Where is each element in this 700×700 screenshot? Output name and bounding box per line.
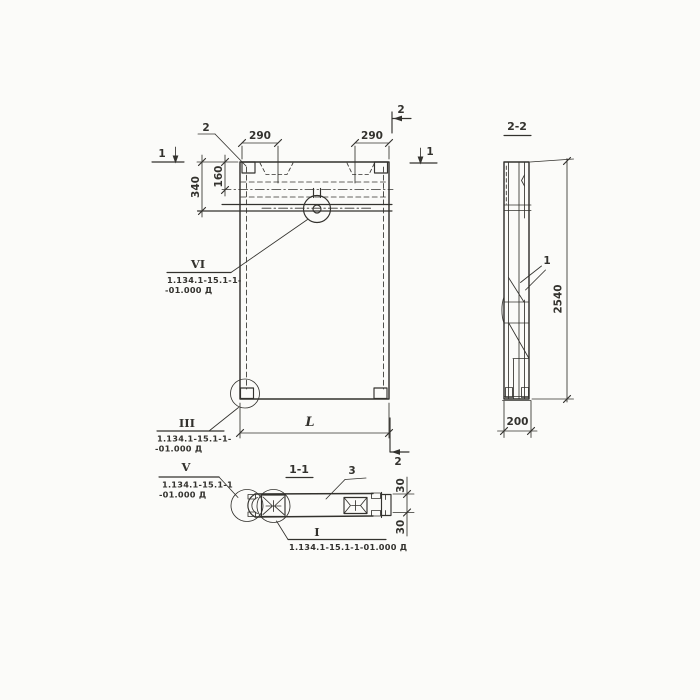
front-view-panel (198, 162, 394, 408)
foot-hatch-right (522, 388, 529, 398)
dim-160: 160 (213, 166, 225, 188)
dim-length-L: L (304, 415, 314, 430)
right-end-channel (372, 493, 392, 518)
middle-anchor-box (344, 498, 367, 514)
section-mark-1-left: 1 (152, 147, 184, 164)
section-2-2-title: 2-2 (507, 120, 527, 133)
section-mark-2-top-label: 2 (397, 104, 404, 116)
drawing-sheet: 290 290 340 160 L 1 1 (0, 0, 700, 700)
detail-i-label: I (314, 525, 319, 539)
bottom-right-hatch-pad (374, 388, 387, 399)
detail-vi-label: VI (190, 257, 205, 271)
lifting-loop-detail (304, 189, 331, 223)
technical-drawing: 290 290 340 160 L 1 1 (0, 0, 700, 700)
section-1-1-title: 1-1 (289, 463, 309, 476)
callout-1-label: 1 (543, 255, 550, 267)
detail-vi-doc-line1: 1.134.1-15.1-1- (167, 275, 242, 285)
detail-v-label: V (181, 460, 192, 474)
detail-v-doc-line1: 1.134.1-15.1-1 (162, 480, 233, 490)
callout-3-label: 3 (348, 465, 355, 477)
section-mark-2-bottom-label: 2 (394, 456, 401, 468)
detail-v-doc-line2: -01.000 Д (159, 490, 206, 500)
detail-circle-vi (304, 196, 331, 223)
dim-30-top: 30 (395, 478, 407, 493)
right-recess-hidden-outline (347, 163, 375, 175)
dim-340: 340 (190, 176, 202, 198)
section-mark-1-right: 1 (410, 146, 437, 165)
bottom-left-hatch-pad (241, 388, 254, 399)
section-mark-1-right-label: 1 (426, 146, 433, 158)
detail-callout-iii: III 1.134.1-15.1-1- -01.000 Д (155, 408, 239, 454)
detail-callout-vi: VI 1.134.1-15.1-1- -01.000 Д (165, 220, 308, 296)
detail-circle-iii (231, 379, 260, 408)
detail-iii-doc-line2: -01.000 Д (155, 444, 202, 454)
loop-ring (313, 205, 321, 213)
section-mark-2-top: 2 (392, 104, 411, 133)
left-recess-hidden-outline (260, 163, 293, 175)
top-right-hatch-pad (375, 162, 388, 173)
foot-hatch-left (506, 388, 513, 398)
detail-iii-doc-line1: 1.134.1-15.1-1- (157, 434, 232, 444)
detail-callout-v: V 1.134.1-15.1-1 -01.000 Д (159, 460, 238, 500)
loop-notch (522, 175, 525, 186)
callout-1: 1 (521, 255, 551, 290)
dim-2540: 2540 (553, 284, 565, 313)
corbel-detail (502, 278, 529, 359)
detail-vi-doc-line2: -01.000 Д (165, 285, 212, 295)
dim-30-bottom: 30 (395, 520, 407, 535)
detail-callout-i: I 1.134.1-15.1-1-01.000 Д (277, 521, 408, 552)
dim-290-right: 290 (361, 130, 383, 142)
dim-290-left: 290 (249, 130, 271, 142)
callout-2-label: 2 (202, 122, 209, 134)
section-1-1-view: 1-1 (231, 463, 414, 536)
detail-iii-label: III (179, 416, 195, 430)
section-2-2-view: 2-2 1 (498, 120, 574, 438)
section-mark-2-bottom: 2 (390, 418, 409, 468)
section-mark-1-left-label: 1 (158, 148, 165, 160)
detail-i-doc: 1.134.1-15.1-1-01.000 Д (289, 542, 407, 552)
detail-circle-v (231, 490, 263, 522)
dim-200: 200 (507, 416, 529, 428)
